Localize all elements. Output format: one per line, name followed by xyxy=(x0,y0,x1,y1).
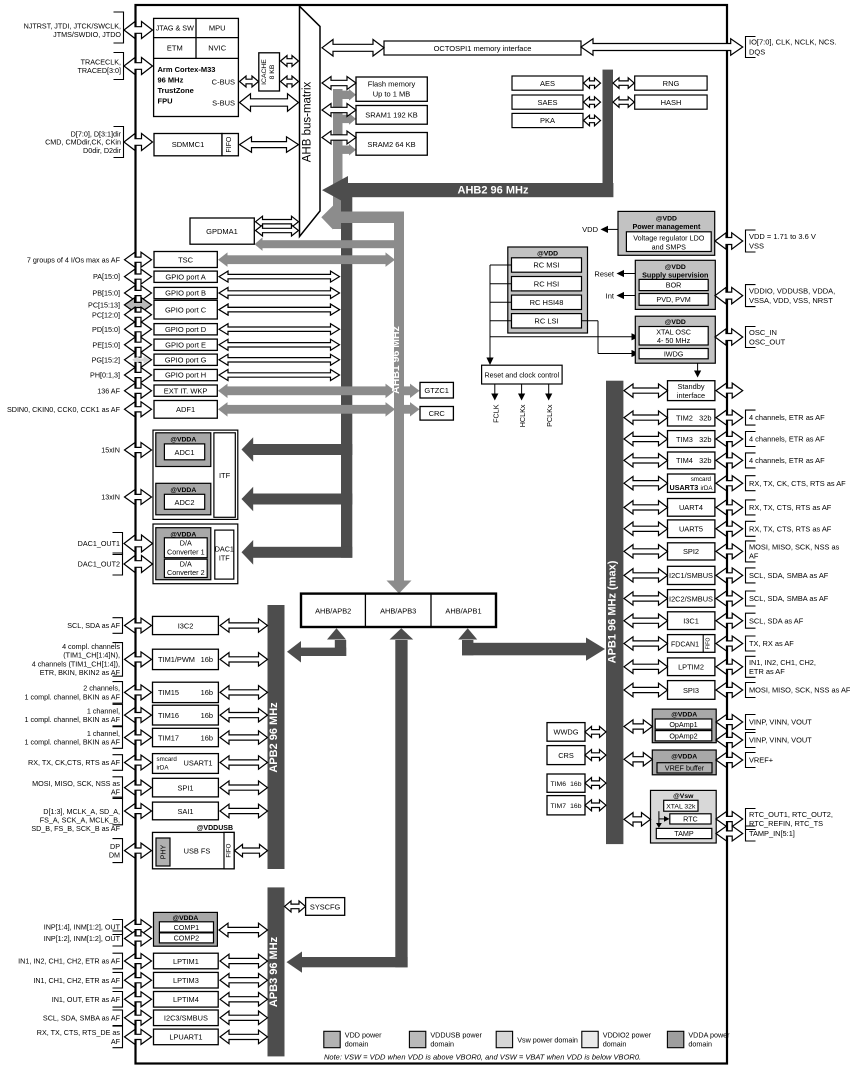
svg-text:TRACED[3:0]: TRACED[3:0] xyxy=(77,66,121,75)
svg-text:D/A: D/A xyxy=(180,560,192,569)
svg-text:SPI3: SPI3 xyxy=(683,686,699,695)
svg-text:irDA: irDA xyxy=(157,764,170,771)
svg-text:TIM17: TIM17 xyxy=(158,733,179,742)
svg-text:PB[15:0]: PB[15:0] xyxy=(92,289,120,298)
svg-text:domain: domain xyxy=(345,1039,369,1048)
svg-text:AF: AF xyxy=(749,551,759,560)
svg-text:USART1: USART1 xyxy=(183,758,212,767)
svg-text:SDMMC1: SDMMC1 xyxy=(172,140,205,149)
svg-text:GPIO port D: GPIO port D xyxy=(165,325,207,334)
svg-text:OCTOSPI1 memory interface: OCTOSPI1 memory interface xyxy=(434,44,532,53)
svg-text:SCL, SDA, SMBA as AF: SCL, SDA, SMBA as AF xyxy=(749,571,829,580)
svg-text:MOSI, MISO, SCK, NSS as AF: MOSI, MISO, SCK, NSS as AF xyxy=(749,686,850,695)
svg-text:SPI2: SPI2 xyxy=(683,547,699,556)
svg-text:@VDD: @VDD xyxy=(537,251,558,258)
svg-text:Reset: Reset xyxy=(594,269,615,278)
svg-text:GPIO port A: GPIO port A xyxy=(165,272,205,281)
svg-text:VREF+: VREF+ xyxy=(749,756,773,765)
svg-text:15xIN: 15xIN xyxy=(101,446,120,455)
svg-text:7 groups of 4 I/Os max as AF: 7 groups of 4 I/Os max as AF xyxy=(27,255,121,264)
svg-text:UART5: UART5 xyxy=(679,525,703,534)
svg-text:SCL, SDA as AF: SCL, SDA as AF xyxy=(67,621,120,630)
svg-text:13xIN: 13xIN xyxy=(101,493,120,502)
svg-text:VSSA, VDD, VSS, NRST: VSSA, VDD, VSS, NRST xyxy=(749,296,833,305)
svg-text:4 channels, ETR as AF: 4 channels, ETR as AF xyxy=(749,456,825,465)
svg-text:RNG: RNG xyxy=(663,79,680,88)
svg-text:COMP1: COMP1 xyxy=(174,923,200,932)
svg-text:I3C2: I3C2 xyxy=(178,621,194,630)
svg-text:FIFO: FIFO xyxy=(226,843,233,857)
svg-text:OpAmp2: OpAmp2 xyxy=(669,731,697,740)
svg-text:IN1, CH1, CH2, ETR as AF: IN1, CH1, CH2, ETR as AF xyxy=(33,976,120,985)
svg-text:1 compl. channel, BKIN as AF: 1 compl. channel, BKIN as AF xyxy=(25,715,121,724)
svg-text:ITF: ITF xyxy=(219,554,230,563)
svg-text:TX, RX as AF: TX, RX as AF xyxy=(749,639,794,648)
svg-text:MOSI, MISO, SCK, NSS as: MOSI, MISO, SCK, NSS as xyxy=(32,779,120,788)
svg-text:Flash memory: Flash memory xyxy=(368,80,416,89)
svg-text:EXT IT. WKP: EXT IT. WKP xyxy=(164,387,208,396)
svg-text:JTAG & SW: JTAG & SW xyxy=(156,24,194,33)
svg-text:VDD = 1.71 to 3.6 V: VDD = 1.71 to 3.6 V xyxy=(749,232,816,241)
svg-text:AHB2 96 MHz: AHB2 96 MHz xyxy=(458,185,529,197)
svg-text:GPIO port B: GPIO port B xyxy=(165,289,206,298)
svg-text:SRAM1 192 KB: SRAM1 192 KB xyxy=(365,111,418,120)
svg-text:Power management: Power management xyxy=(632,222,701,231)
svg-text:VINP, VINN, VOUT: VINP, VINN, VOUT xyxy=(749,736,812,745)
svg-text:SDIN0, CKIN0, CCK0, CCK1 as AF: SDIN0, CKIN0, CCK0, CCK1 as AF xyxy=(7,405,121,414)
svg-text:TIM4: TIM4 xyxy=(676,456,693,465)
svg-text:Reset and clock control: Reset and clock control xyxy=(484,371,559,380)
svg-text:@Vsw: @Vsw xyxy=(673,793,694,800)
svg-text:ETM: ETM xyxy=(167,44,183,53)
svg-text:INP[1:4], INM[1:2], OUT: INP[1:4], INM[1:2], OUT xyxy=(44,923,121,932)
svg-text:ICACHE: ICACHE xyxy=(261,59,268,85)
svg-text:domain: domain xyxy=(603,1039,627,1048)
svg-text:16b: 16b xyxy=(201,655,213,664)
svg-text:DAC1_OUT2: DAC1_OUT2 xyxy=(78,560,120,569)
svg-text:WWDG: WWDG xyxy=(553,728,578,737)
svg-text:AF: AF xyxy=(111,788,121,797)
svg-text:@VDDA: @VDDA xyxy=(671,712,697,719)
svg-text:LPUART1: LPUART1 xyxy=(169,1033,202,1042)
svg-text:ITF: ITF xyxy=(219,471,231,480)
svg-text:OSC_OUT: OSC_OUT xyxy=(749,337,786,346)
svg-text:RX, TX, CTS, RTS as AF: RX, TX, CTS, RTS as AF xyxy=(749,503,832,512)
svg-text:@VDDA: @VDDA xyxy=(172,915,198,922)
svg-text:TIM1/PWM: TIM1/PWM xyxy=(158,655,195,664)
svg-text:FPU: FPU xyxy=(158,97,173,106)
svg-text:ADF1: ADF1 xyxy=(176,405,195,414)
svg-text:@VDDA: @VDDA xyxy=(170,487,196,494)
svg-text:DQS: DQS xyxy=(749,48,765,57)
svg-text:LPTIM1: LPTIM1 xyxy=(173,957,199,966)
svg-text:C-BUS: C-BUS xyxy=(212,77,235,86)
svg-text:RC MSI: RC MSI xyxy=(533,261,559,270)
svg-text:JTMS/SWDIO, JTDO: JTMS/SWDIO, JTDO xyxy=(53,30,121,39)
svg-text:PG[15:2]: PG[15:2] xyxy=(92,355,120,364)
svg-text:LPTIM4: LPTIM4 xyxy=(173,995,199,1004)
svg-text:FIFO: FIFO xyxy=(706,638,712,650)
svg-text:@VDDUSB: @VDDUSB xyxy=(197,825,233,832)
svg-text:SCL, SDA as AF: SCL, SDA as AF xyxy=(749,616,804,625)
svg-text:136 AF: 136 AF xyxy=(97,386,120,395)
svg-text:16b: 16b xyxy=(201,733,213,742)
svg-text:SYSCFG: SYSCFG xyxy=(310,902,341,911)
svg-text:smcard: smcard xyxy=(157,756,178,763)
svg-text:GPIO port G: GPIO port G xyxy=(165,356,207,365)
svg-text:USART3: USART3 xyxy=(670,483,699,492)
svg-text:PCLKx: PCLKx xyxy=(545,404,554,427)
svg-text:irDA: irDA xyxy=(701,485,714,492)
svg-text:TIM6: TIM6 xyxy=(551,781,567,788)
svg-text:Up to 1 MB: Up to 1 MB xyxy=(373,90,411,99)
svg-text:@VDDA: @VDDA xyxy=(671,753,697,760)
svg-text:CRC: CRC xyxy=(429,409,446,418)
svg-text:I2C1/SMBUS: I2C1/SMBUS xyxy=(669,571,713,580)
svg-text:IN1, OUT, ETR as AF: IN1, OUT, ETR as AF xyxy=(52,995,121,1004)
svg-text:domain: domain xyxy=(688,1039,712,1048)
svg-text:8 KB: 8 KB xyxy=(269,64,276,79)
svg-text:Standby: Standby xyxy=(677,382,704,391)
svg-text:PVD, PVM: PVD, PVM xyxy=(656,295,690,304)
svg-text:RTC: RTC xyxy=(683,815,698,824)
svg-text:@VDD: @VDD xyxy=(665,319,686,326)
svg-text:SCL, SDA, SMBA as AF: SCL, SDA, SMBA as AF xyxy=(749,594,829,603)
svg-text:D0dir, D2dir: D0dir, D2dir xyxy=(83,146,122,155)
svg-text:PE[15:0]: PE[15:0] xyxy=(92,340,120,349)
svg-text:I3C1: I3C1 xyxy=(683,617,699,626)
svg-text:GPIO port E: GPIO port E xyxy=(165,341,206,350)
svg-text:PH[0:1,3]: PH[0:1,3] xyxy=(90,371,120,380)
svg-text:PC[12:0]: PC[12:0] xyxy=(92,310,120,319)
svg-text:APB1 96 MHz (max): APB1 96 MHz (max) xyxy=(607,560,619,663)
svg-text:RX, TX, CTS, RTS as AF: RX, TX, CTS, RTS as AF xyxy=(749,524,832,533)
svg-text:PD[15:0]: PD[15:0] xyxy=(92,325,120,334)
svg-text:1 compl. channel, BKIN as AF: 1 compl. channel, BKIN as AF xyxy=(25,737,121,746)
svg-text:XTAL OSC: XTAL OSC xyxy=(656,327,691,336)
svg-text:AHB/APB3: AHB/APB3 xyxy=(380,606,416,615)
svg-text:GPDMA1: GPDMA1 xyxy=(206,227,238,236)
svg-text:TIM15: TIM15 xyxy=(158,688,179,697)
svg-text:TAMP: TAMP xyxy=(674,829,694,838)
svg-text:96 MHz: 96 MHz xyxy=(158,76,184,85)
svg-text:APB2 96 MHz: APB2 96 MHz xyxy=(268,702,280,773)
svg-text:CRS: CRS xyxy=(558,751,574,760)
svg-text:Converter 1: Converter 1 xyxy=(167,548,205,557)
svg-text:D/A: D/A xyxy=(180,539,192,548)
svg-text:SAES: SAES xyxy=(537,98,557,107)
svg-text:Vsw power domain: Vsw power domain xyxy=(517,1035,578,1044)
svg-text:UART4: UART4 xyxy=(679,503,703,512)
svg-text:DM: DM xyxy=(109,851,120,860)
svg-text:RC LSI: RC LSI xyxy=(534,316,558,325)
svg-text:AHB bus-matrix: AHB bus-matrix xyxy=(302,81,314,162)
svg-text:OpAmp1: OpAmp1 xyxy=(669,720,697,729)
svg-text:AHB/APB1: AHB/APB1 xyxy=(445,606,481,615)
svg-text:16b: 16b xyxy=(570,803,582,810)
svg-text:1 compl. channel, BKIN as AF: 1 compl. channel, BKIN as AF xyxy=(25,692,121,701)
svg-text:MPU: MPU xyxy=(209,24,226,33)
svg-text:4 channels, ETR as AF: 4 channels, ETR as AF xyxy=(749,435,825,444)
svg-text:RX, TX, CK, CTS, RTS as AF: RX, TX, CK, CTS, RTS as AF xyxy=(749,479,846,488)
svg-text:VDDIO, VDDUSB, VDDA,: VDDIO, VDDUSB, VDDA, xyxy=(749,287,835,296)
svg-text:Int: Int xyxy=(606,291,615,300)
svg-text:ADC1: ADC1 xyxy=(174,448,194,457)
svg-text:PC[15:13]: PC[15:13] xyxy=(88,301,120,310)
svg-text:TIM7: TIM7 xyxy=(551,803,567,810)
svg-text:32b: 32b xyxy=(699,456,711,465)
svg-text:OSC_IN: OSC_IN xyxy=(749,328,777,337)
svg-text:4 channels, ETR as AF: 4 channels, ETR as AF xyxy=(749,413,825,422)
svg-text:BOR: BOR xyxy=(666,281,682,290)
svg-text:ADC2: ADC2 xyxy=(174,498,194,507)
svg-text:AF: AF xyxy=(111,1037,121,1046)
svg-text:Voltage regulator LDO: Voltage regulator LDO xyxy=(633,233,705,242)
svg-text:GTZC1: GTZC1 xyxy=(424,386,449,395)
svg-text:TIM3: TIM3 xyxy=(676,435,693,444)
svg-text:Supply supervision: Supply supervision xyxy=(642,271,708,280)
svg-text:GPIO port H: GPIO port H xyxy=(165,371,206,380)
svg-text:NVIC: NVIC xyxy=(208,44,227,53)
svg-text:SPI1: SPI1 xyxy=(177,783,193,792)
svg-text:16b: 16b xyxy=(201,688,213,697)
svg-text:@VDDA: @VDDA xyxy=(170,437,196,444)
svg-text:16b: 16b xyxy=(201,711,213,720)
svg-text:VINP, VINN, VOUT: VINP, VINN, VOUT xyxy=(749,718,812,727)
svg-text:AHB/APB2: AHB/APB2 xyxy=(315,606,351,615)
svg-text:HASH: HASH xyxy=(661,98,682,107)
svg-text:MOSI, MISO, SCK, NSS as: MOSI, MISO, SCK, NSS as xyxy=(749,543,840,552)
svg-text:Converter 2: Converter 2 xyxy=(167,568,205,577)
svg-text:RC HSI: RC HSI xyxy=(534,279,559,288)
svg-text:RTC_OUT1, RTC_OUT2,: RTC_OUT1, RTC_OUT2, xyxy=(749,810,833,819)
svg-text:IN1, IN2, CH1, CH2,: IN1, IN2, CH1, CH2, xyxy=(749,658,816,667)
svg-text:I2C2/SMBUS: I2C2/SMBUS xyxy=(669,594,713,603)
svg-text:PKA: PKA xyxy=(540,116,555,125)
svg-text:32b: 32b xyxy=(699,435,711,444)
svg-text:Note: VSW = VDD when VDD is a: Note: VSW = VDD when VDD is above VBOR0,… xyxy=(324,1053,641,1062)
svg-text:ETR as AF: ETR as AF xyxy=(749,667,785,676)
svg-text:PHY: PHY xyxy=(161,844,168,859)
svg-text:RX, TX, CTS, RTS_DE as: RX, TX, CTS, RTS_DE as xyxy=(37,1028,121,1037)
svg-text:VDD: VDD xyxy=(582,225,598,234)
svg-text:VREF buffer: VREF buffer xyxy=(665,764,705,773)
svg-text:AHB1 96 MHz: AHB1 96 MHz xyxy=(390,326,402,394)
svg-text:XTAL 32k: XTAL 32k xyxy=(666,804,696,811)
svg-text:SRAM2 64 KB: SRAM2 64 KB xyxy=(367,140,415,149)
svg-text:SAI1: SAI1 xyxy=(177,807,193,816)
svg-text:TIM16: TIM16 xyxy=(158,711,179,720)
svg-text:APB3 96 MHz: APB3 96 MHz xyxy=(268,936,280,1007)
svg-text:FDCAN1: FDCAN1 xyxy=(671,641,699,648)
svg-text:TIM2: TIM2 xyxy=(676,413,693,422)
svg-text:FIFO: FIFO xyxy=(226,136,233,152)
svg-text:FCLK: FCLK xyxy=(491,404,500,423)
svg-text:SCL, SDA, SMBA as AF: SCL, SDA, SMBA as AF xyxy=(43,1013,121,1022)
svg-text:RC HSI48: RC HSI48 xyxy=(530,298,564,307)
svg-text:GPIO port C: GPIO port C xyxy=(165,305,207,314)
svg-text:and SMPS: and SMPS xyxy=(652,242,687,251)
svg-text:32b: 32b xyxy=(699,413,711,422)
svg-text:Arm Cortex-M33: Arm Cortex-M33 xyxy=(158,65,216,74)
svg-text:IO[7:0], CLK, NCLK, NCS.: IO[7:0], CLK, NCLK, NCS. xyxy=(749,38,837,47)
svg-text:domain: domain xyxy=(430,1039,454,1048)
svg-text:INP[1:2], INM[1:2], OUT: INP[1:2], INM[1:2], OUT xyxy=(44,934,121,943)
svg-text:16b: 16b xyxy=(570,781,582,788)
svg-text:I2C3/SMBUS: I2C3/SMBUS xyxy=(164,1014,208,1023)
svg-text:COMP2: COMP2 xyxy=(174,934,200,943)
svg-text:IWDG: IWDG xyxy=(664,350,684,359)
svg-text:HCLKx: HCLKx xyxy=(518,404,527,427)
svg-text:AES: AES xyxy=(540,79,555,88)
svg-text:SD_B, FS_B, SCK_B as AF: SD_B, FS_B, SCK_B as AF xyxy=(31,824,120,833)
svg-text:RX, TX, CK,CTS, RTS as AF: RX, TX, CK,CTS, RTS as AF xyxy=(28,758,121,767)
svg-text:VSS: VSS xyxy=(749,241,764,250)
svg-text:TrustZone: TrustZone xyxy=(158,86,194,95)
svg-text:IN1, IN2, CH1, CH2, ETR as AF: IN1, IN2, CH1, CH2, ETR as AF xyxy=(18,957,120,966)
svg-text:LPTIM3: LPTIM3 xyxy=(173,976,199,985)
svg-text:DAC1: DAC1 xyxy=(215,545,234,554)
svg-text:ETR, BKIN, BKIN2 as AF: ETR, BKIN, BKIN2 as AF xyxy=(40,668,121,677)
svg-text:RTC_REFIN, RTC_TS: RTC_REFIN, RTC_TS xyxy=(749,819,823,828)
svg-text:interface: interface xyxy=(677,391,705,400)
svg-text:LPTIM2: LPTIM2 xyxy=(678,663,704,672)
svg-text:S-BUS: S-BUS xyxy=(212,98,235,107)
svg-text:TAMP_IN[5:1]: TAMP_IN[5:1] xyxy=(749,829,795,838)
svg-text:TSC: TSC xyxy=(178,255,194,264)
svg-text:USB FS: USB FS xyxy=(184,847,211,856)
svg-text:PA[15:0]: PA[15:0] xyxy=(93,272,120,281)
svg-text:4- 50 MHz: 4- 50 MHz xyxy=(657,336,691,345)
svg-text:DAC1_OUT1: DAC1_OUT1 xyxy=(78,539,120,548)
